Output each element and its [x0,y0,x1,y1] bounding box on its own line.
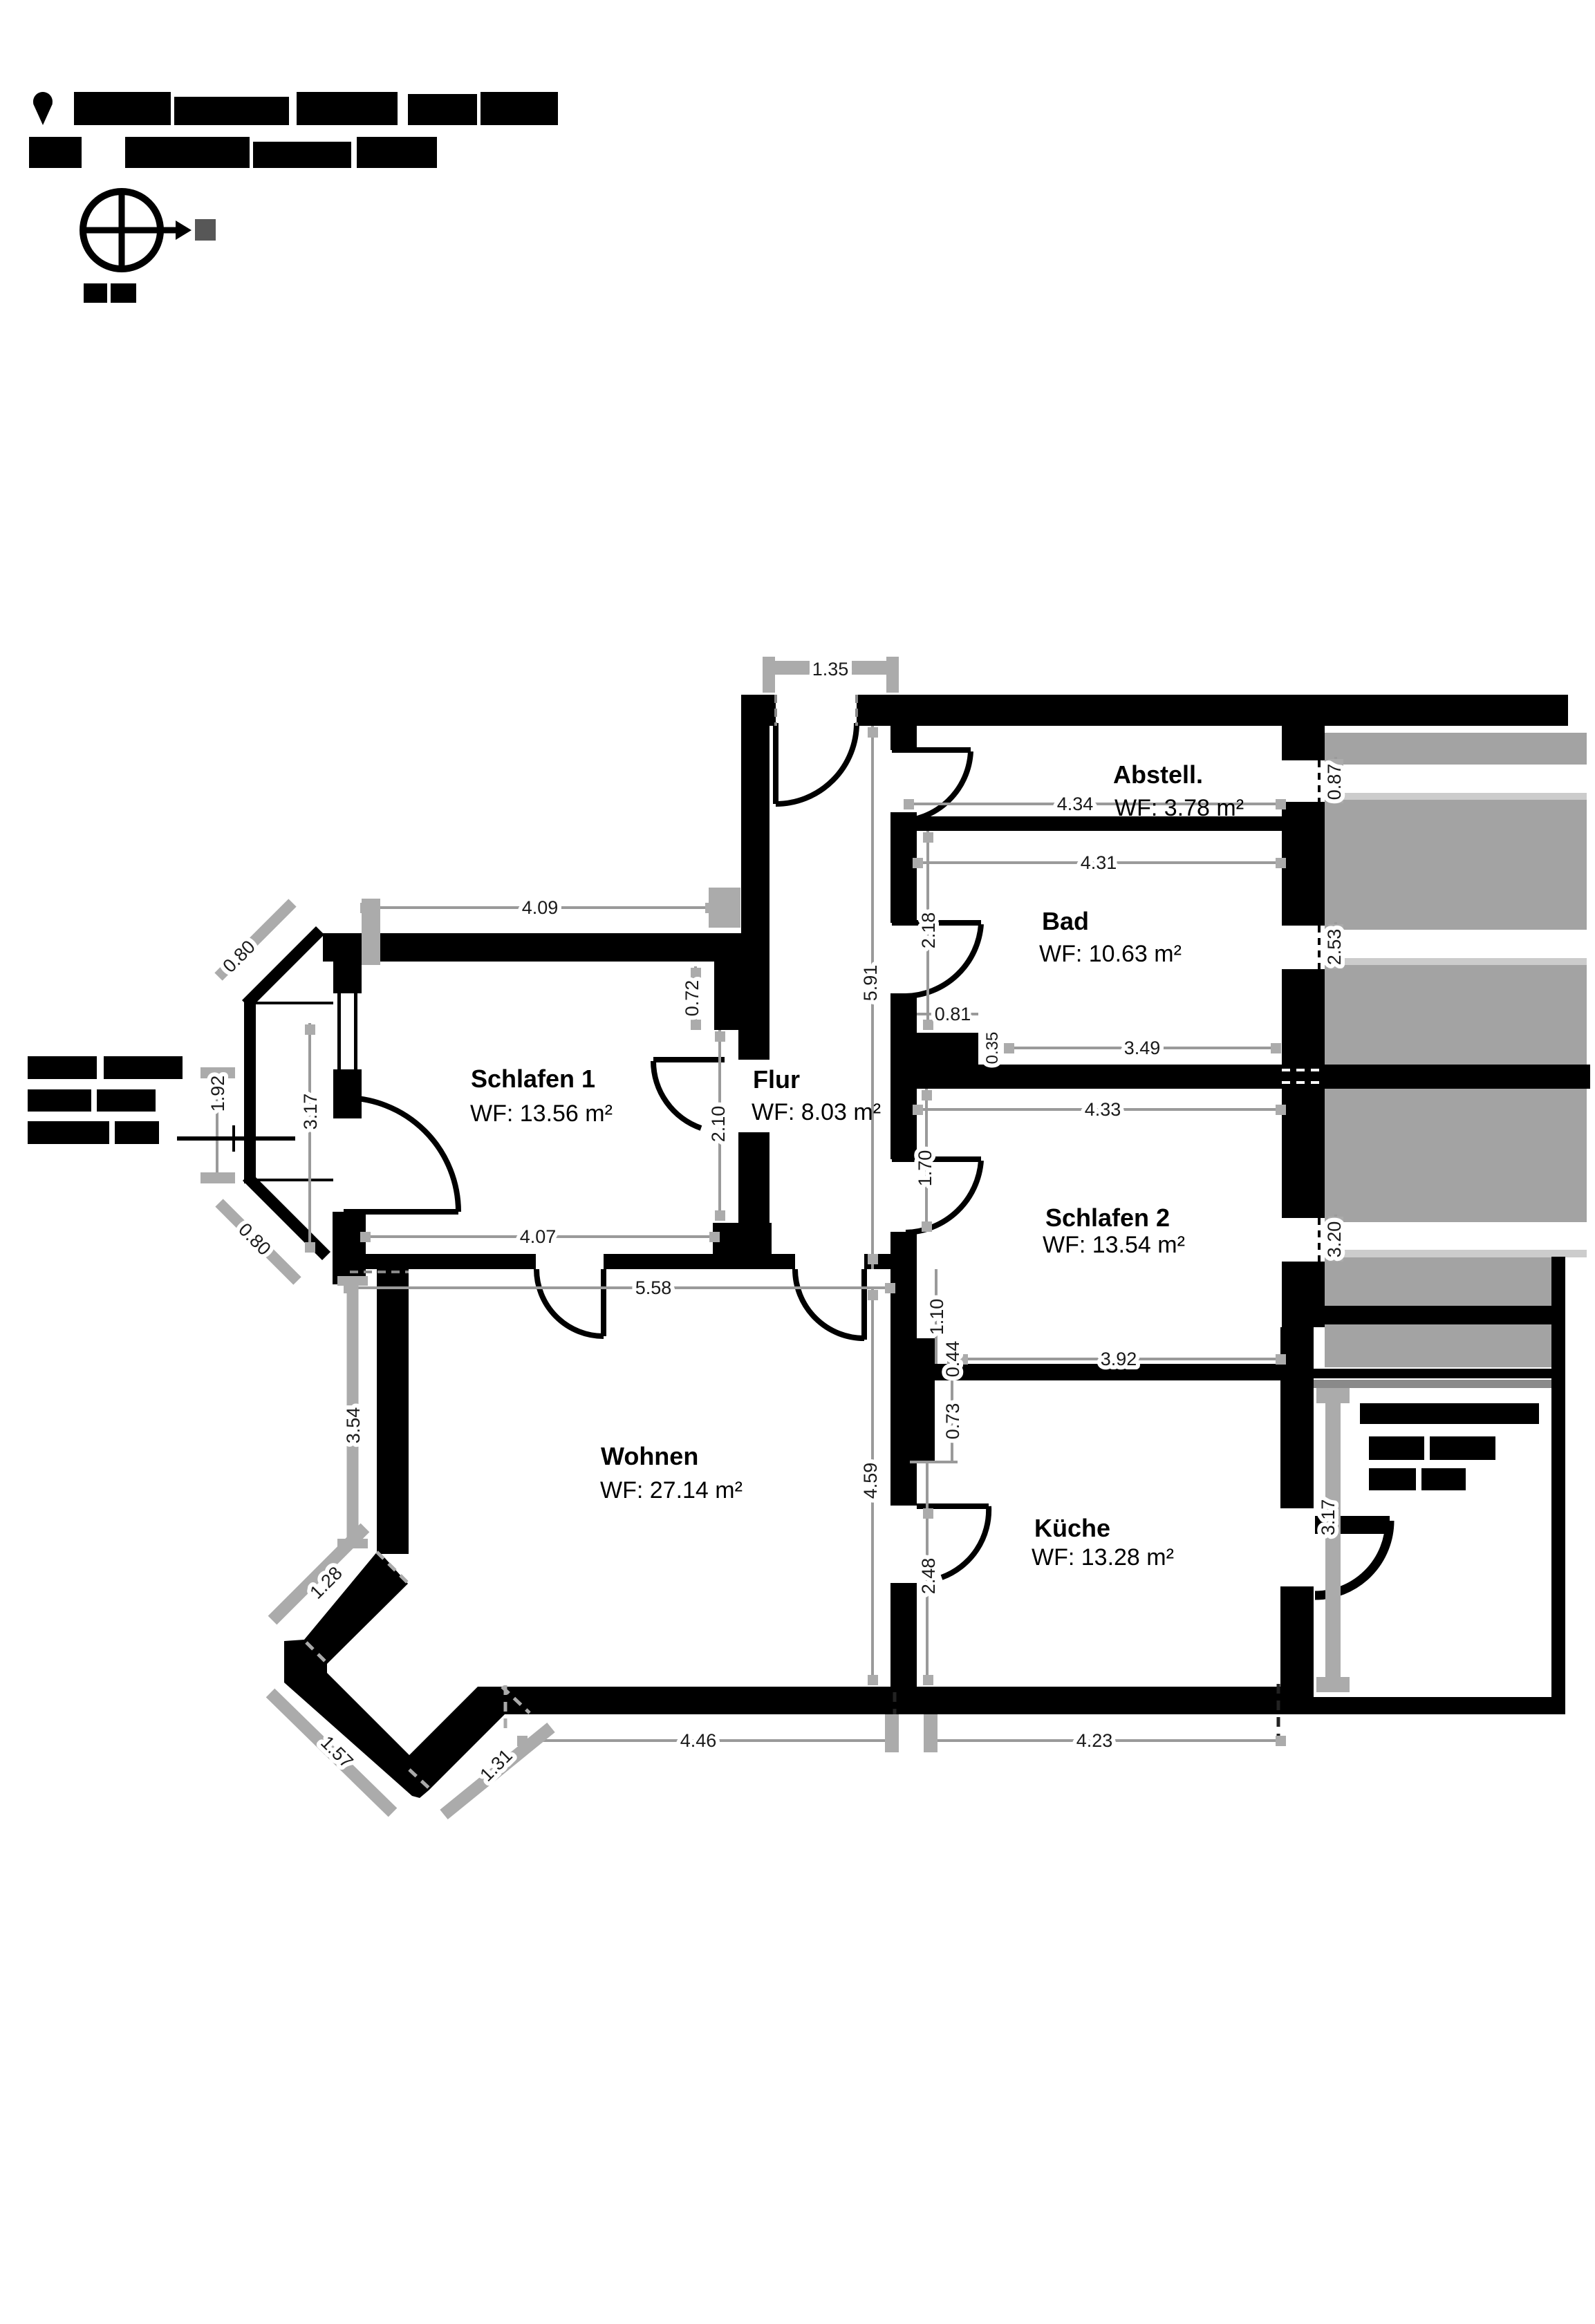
svg-text:WF: 13.56 m²: WF: 13.56 m² [470,1100,613,1127]
svg-text:Küche: Küche [1034,1514,1110,1542]
svg-text:Wohnen: Wohnen [601,1442,698,1470]
svg-text:0.73: 0.73 [942,1403,963,1440]
svg-text:3.17: 3.17 [1318,1499,1339,1536]
svg-text:3.54: 3.54 [343,1407,364,1444]
svg-text:3.17: 3.17 [300,1094,321,1130]
svg-text:4.23: 4.23 [1076,1730,1113,1751]
svg-text:Bad: Bad [1042,907,1089,935]
svg-text:0.81: 0.81 [935,1004,971,1024]
svg-text:1.70: 1.70 [915,1150,935,1187]
svg-text:4.59: 4.59 [860,1463,881,1499]
svg-text:1.92: 1.92 [207,1076,228,1112]
svg-text:1.10: 1.10 [926,1299,947,1336]
svg-text:Abstell.: Abstell. [1113,760,1203,789]
svg-text:0.72: 0.72 [682,980,702,1017]
svg-text:5.58: 5.58 [635,1277,672,1298]
svg-text:2.10: 2.10 [708,1106,729,1143]
svg-text:0.44: 0.44 [942,1341,963,1378]
svg-text:3.20: 3.20 [1324,1221,1345,1258]
svg-text:Flur: Flur [753,1065,800,1094]
svg-text:4.31: 4.31 [1081,852,1117,873]
svg-text:4.46: 4.46 [680,1730,717,1751]
svg-text:2.18: 2.18 [918,912,939,949]
svg-text:5.91: 5.91 [860,965,881,1002]
svg-text:1.35: 1.35 [812,659,849,680]
svg-text:WF: 27.14 m²: WF: 27.14 m² [600,1477,743,1503]
svg-text:2.53: 2.53 [1324,929,1345,966]
svg-text:4.09: 4.09 [522,897,559,918]
svg-text:WF: 10.63 m²: WF: 10.63 m² [1039,941,1182,967]
svg-text:WF: 8.03 m²: WF: 8.03 m² [752,1099,881,1125]
svg-text:0.87: 0.87 [1324,764,1345,800]
svg-text:3.92: 3.92 [1101,1349,1137,1369]
svg-text:4.33: 4.33 [1085,1099,1121,1120]
svg-text:WF: 3.78 m²: WF: 3.78 m² [1114,795,1244,821]
svg-text:0.35: 0.35 [983,1032,1002,1065]
svg-text:WF: 13.28 m²: WF: 13.28 m² [1032,1544,1174,1571]
svg-text:WF: 13.54 m²: WF: 13.54 m² [1043,1232,1185,1258]
svg-text:4.07: 4.07 [520,1226,557,1247]
svg-text:3.49: 3.49 [1124,1038,1161,1058]
svg-text:4.34: 4.34 [1057,794,1094,814]
svg-text:Schlafen 1: Schlafen 1 [471,1065,595,1093]
svg-text:2.48: 2.48 [918,1558,939,1595]
svg-text:Schlafen 2: Schlafen 2 [1045,1203,1170,1232]
